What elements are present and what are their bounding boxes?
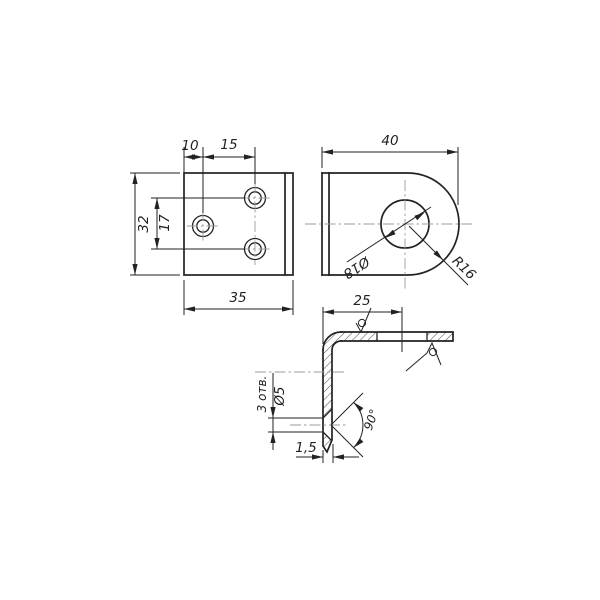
dim-label-dia18: Ø18 — [340, 253, 373, 282]
dim-label-dia5: Ø5 — [272, 386, 288, 406]
dim-hole-spacing-15: 15 — [203, 137, 255, 160]
dim-label-15: 15 — [220, 137, 237, 153]
dim-label-17: 17 — [157, 214, 173, 232]
dim-label-40: 40 — [381, 133, 398, 149]
dim-plate-width-35: 35 — [184, 280, 293, 315]
dim-label-holes-note: 3 отв. — [255, 376, 269, 413]
dim-label-thickness: 1,5 — [295, 440, 316, 456]
dim-label-r16: R16 — [449, 253, 479, 283]
hole-middle — [187, 210, 219, 242]
dim-label-90deg: 90° — [361, 407, 381, 432]
roughness-symbol-bottom-icon — [406, 343, 441, 371]
section-view: 25 Ø5 3 отв. 90° 1,5 — [255, 293, 453, 463]
dim-depth-40: 40 — [322, 133, 458, 205]
dim-label-35: 35 — [229, 290, 246, 306]
dim-label-25: 25 — [353, 293, 370, 309]
dim-radius-16: R16 — [409, 226, 479, 285]
dim-small-hole-dia-5: Ø5 3 отв. — [255, 373, 288, 450]
side-view: 40 Ø18 R16 — [305, 133, 479, 290]
hatch-bend-region — [323, 332, 377, 418]
dim-hole-offset-10: 10 — [181, 138, 255, 213]
hatch-strip-end — [427, 332, 453, 341]
dim-label-10: 10 — [181, 138, 198, 154]
engineering-drawing-canvas: 10 15 32 17 — [0, 0, 600, 600]
dim-label-32: 32 — [136, 215, 152, 232]
angle-bracket-drawing: 10 15 32 17 — [0, 0, 600, 600]
front-view: 10 15 32 17 — [130, 137, 293, 315]
plate-outline — [184, 173, 293, 275]
